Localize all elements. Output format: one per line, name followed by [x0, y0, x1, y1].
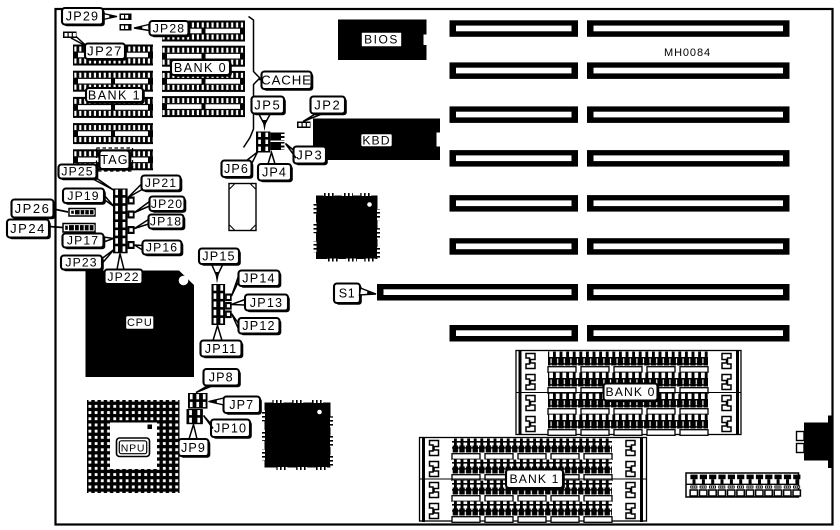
svg-text:MH0084: MH0084: [664, 47, 711, 59]
svg-text:JP16: JP16: [146, 241, 178, 255]
svg-text:BANK 1: BANK 1: [88, 88, 141, 102]
svg-text:JP26: JP26: [15, 201, 51, 216]
svg-text:JP4: JP4: [262, 166, 287, 180]
svg-text:NPU: NPU: [121, 443, 146, 455]
svg-text:JP18: JP18: [150, 215, 182, 229]
svg-text:JP27: JP27: [87, 44, 123, 59]
svg-text:JP17: JP17: [67, 234, 99, 248]
svg-text:JP2: JP2: [314, 97, 341, 112]
svg-text:JP15: JP15: [202, 250, 236, 264]
svg-text:JP6: JP6: [224, 162, 249, 176]
svg-text:JP11: JP11: [205, 342, 238, 356]
svg-text:JP9: JP9: [181, 441, 206, 455]
svg-text:JP10: JP10: [214, 422, 247, 436]
svg-text:JP3: JP3: [296, 147, 323, 162]
svg-text:BIOS: BIOS: [364, 33, 399, 47]
svg-text:TAG: TAG: [100, 153, 128, 167]
svg-text:JP22: JP22: [107, 270, 139, 284]
svg-text:CPU: CPU: [127, 317, 153, 329]
svg-text:JP19: JP19: [67, 189, 99, 203]
svg-text:JP29: JP29: [66, 10, 100, 24]
svg-text:JP25: JP25: [61, 165, 93, 179]
svg-text:JP23: JP23: [65, 256, 97, 270]
svg-text:JP12: JP12: [242, 319, 276, 333]
svg-text:JP13: JP13: [250, 296, 284, 310]
svg-text:JP21: JP21: [145, 176, 177, 190]
svg-text:BANK 0: BANK 0: [174, 61, 227, 75]
svg-text:JP28: JP28: [153, 21, 186, 35]
svg-text:BANK 0: BANK 0: [606, 385, 656, 399]
svg-text:JP24: JP24: [10, 221, 46, 236]
svg-text:S1: S1: [339, 287, 355, 301]
svg-text:JP8: JP8: [209, 371, 234, 385]
svg-text:CACHE: CACHE: [261, 73, 312, 88]
svg-text:KBD: KBD: [362, 133, 390, 147]
svg-text:BANK 1: BANK 1: [510, 472, 560, 486]
svg-text:JP20: JP20: [151, 197, 183, 211]
svg-text:JP5: JP5: [254, 97, 281, 112]
svg-text:JP7: JP7: [229, 398, 254, 412]
svg-text:JP14: JP14: [242, 272, 276, 286]
